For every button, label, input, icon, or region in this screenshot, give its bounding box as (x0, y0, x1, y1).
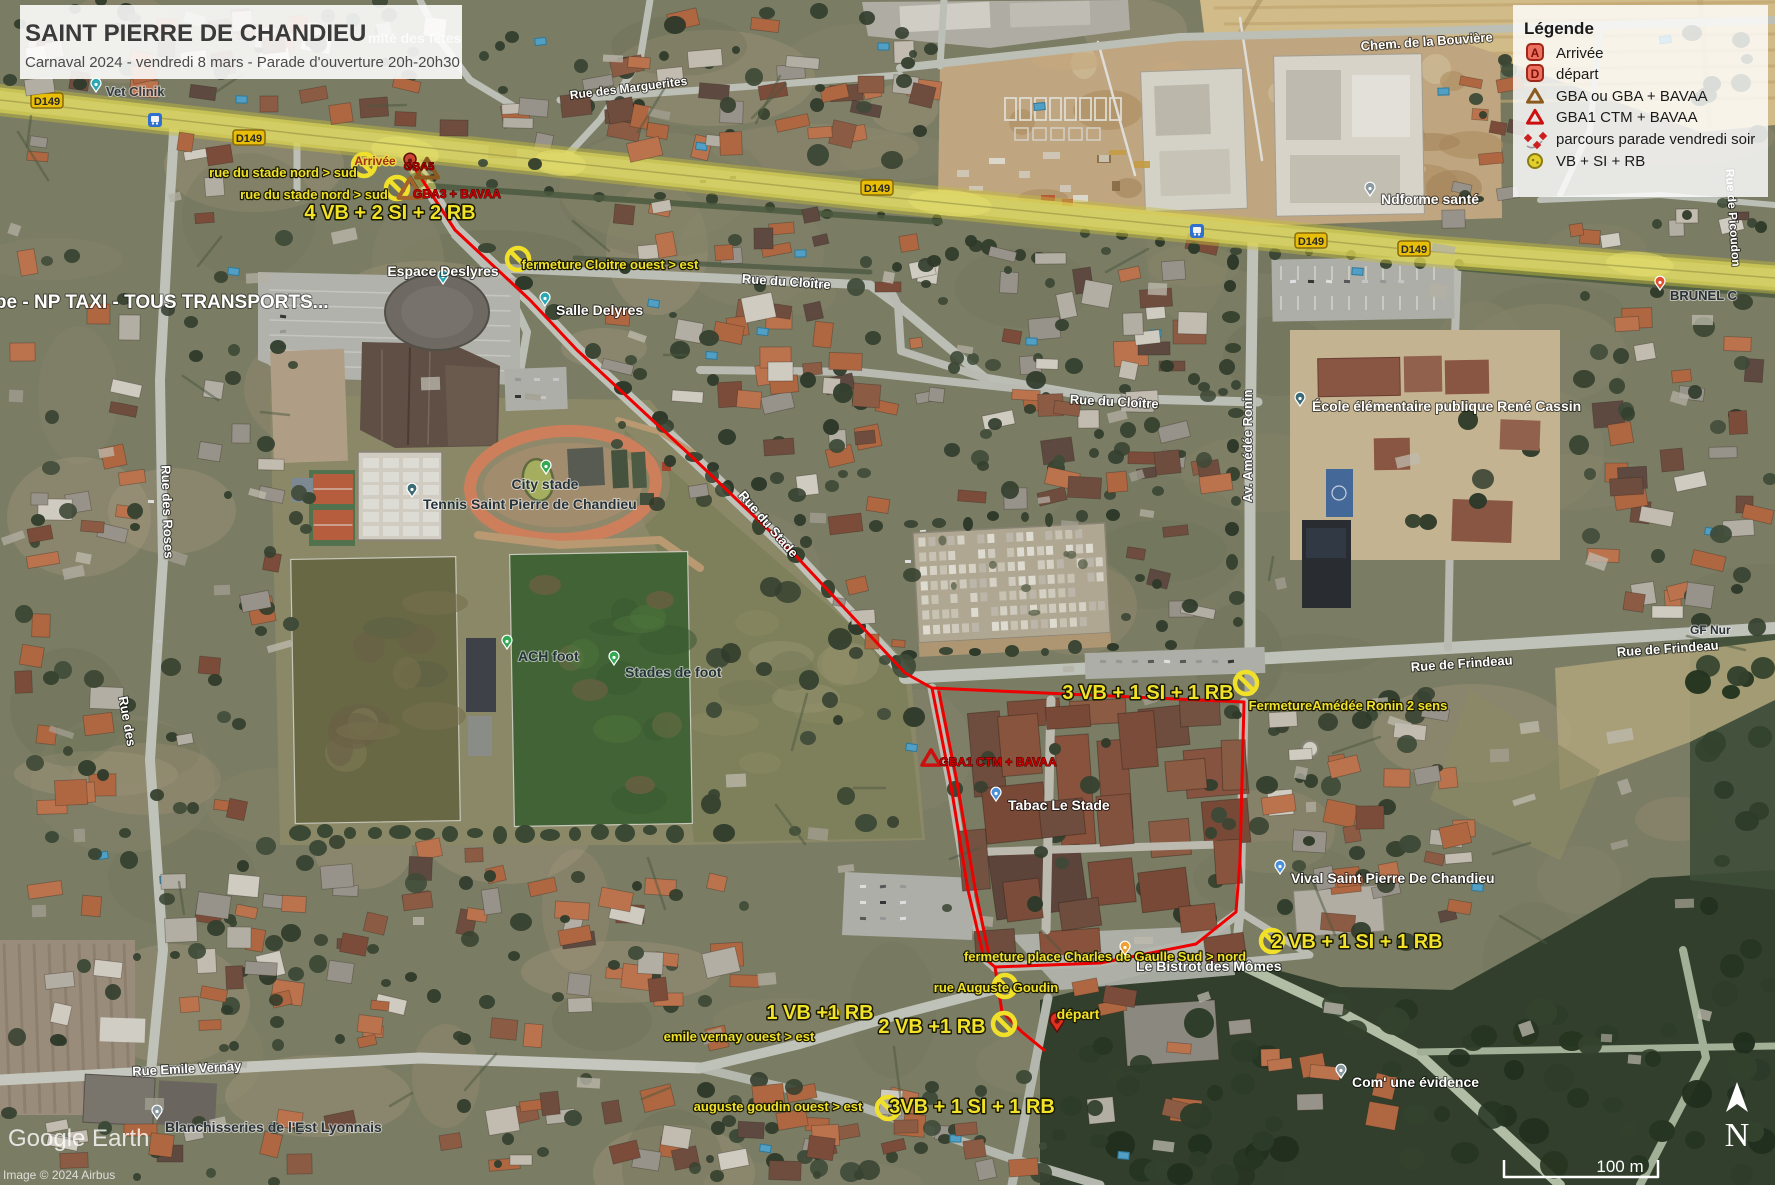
svg-text:4 VB + 2 SI + 2 RB: 4 VB + 2 SI + 2 RB (304, 202, 475, 224)
svg-text:GBA ou GBA + BAVAA: GBA ou GBA + BAVAA (1556, 88, 1708, 105)
svg-text:Stades de foot: Stades de foot (625, 664, 722, 680)
svg-text:Légende: Légende (1524, 19, 1594, 38)
svg-text:D: D (1531, 67, 1540, 81)
svg-text:BRUNEL C: BRUNEL C (1670, 288, 1738, 303)
svg-text:100 m: 100 m (1596, 1157, 1643, 1176)
svg-text:Vival Saint Pierre De Chandieu: Vival Saint Pierre De Chandieu (1291, 870, 1495, 886)
svg-text:2 VB + 1 SI + 1 RB: 2 VB + 1 SI + 1 RB (1271, 931, 1442, 953)
svg-text:Image © 2024 Airbus: Image © 2024 Airbus (3, 1168, 115, 1182)
svg-text:Tennis Saint Pierre de Chandie: Tennis Saint Pierre de Chandieu (423, 496, 637, 512)
svg-text:GBA5: GBA5 (404, 161, 435, 173)
svg-text:départ: départ (1556, 66, 1599, 83)
svg-text:SAINT PIERRE DE CHANDIEU: SAINT PIERRE DE CHANDIEU (25, 20, 366, 47)
svg-text:Salle Delyres: Salle Delyres (556, 302, 643, 318)
svg-text:GF Nur: GF Nur (1690, 623, 1731, 637)
svg-text:Carnaval 2024 - vendredi 8 mar: Carnaval 2024 - vendredi 8 mars - Parade… (25, 54, 460, 71)
svg-text:rue du stade nord > sud: rue du stade nord > sud (240, 187, 388, 202)
svg-text:A: A (1531, 46, 1540, 60)
svg-text:GBA1 CTM + BAVAA: GBA1 CTM + BAVAA (1556, 109, 1698, 126)
svg-text:fermeture Cloitre ouest > est: fermeture Cloitre ouest > est (522, 257, 699, 272)
svg-text:Google Earth: Google Earth (8, 1125, 149, 1152)
svg-text:Com' une évidence: Com' une évidence (1352, 1074, 1479, 1090)
svg-text:N: N (1725, 1117, 1750, 1154)
svg-text:ACH foot: ACH foot (518, 648, 579, 664)
svg-text:École élémentaire publique Ren: École élémentaire publique René Cassin (1312, 398, 1581, 414)
svg-text:GBA1 CTM + BAVAA: GBA1 CTM + BAVAA (939, 755, 1057, 769)
svg-text:1 VB +1 RB: 1 VB +1 RB (766, 1002, 873, 1024)
svg-text:FermetureAmédée Ronin 2 sens: FermetureAmédée Ronin 2 sens (1249, 698, 1448, 713)
svg-text:rue Auguste Goudin: rue Auguste Goudin (934, 980, 1059, 995)
svg-text:Espace Deslyres: Espace Deslyres (387, 263, 499, 279)
svg-text:rue du stade nord > sud: rue du stade nord > sud (209, 165, 357, 180)
svg-text:auguste goudin ouest > est: auguste goudin ouest > est (694, 1099, 863, 1114)
svg-text:GBA3 + BAVAA: GBA3 + BAVAA (413, 187, 501, 201)
svg-text:3 VB + 1 SI + 1 RB: 3 VB + 1 SI + 1 RB (1062, 682, 1233, 704)
svg-text:Av. Amédée Ronin: Av. Amédée Ronin (1240, 389, 1255, 502)
svg-text:ilippe - NP TAXI - TOUS TRANSP: ilippe - NP TAXI - TOUS TRANSPORTS... (0, 292, 329, 313)
svg-text:City stade: City stade (512, 476, 579, 492)
svg-text:3VB + 1 SI + 1 RB: 3VB + 1 SI + 1 RB (889, 1096, 1055, 1118)
svg-text:Vet Clinik: Vet Clinik (106, 84, 165, 99)
svg-text:Ndforme santé: Ndforme santé (1381, 191, 1479, 207)
svg-text:Arrivée: Arrivée (1556, 45, 1604, 62)
svg-text:VB + SI + RB: VB + SI + RB (1556, 153, 1645, 170)
svg-text:départ: départ (1057, 1006, 1100, 1022)
svg-text:emile vernay ouest > est: emile vernay ouest > est (664, 1029, 815, 1044)
svg-text:2 VB +1 RB: 2 VB +1 RB (878, 1016, 985, 1038)
svg-text:Le Bistrot des Mômes: Le Bistrot des Mômes (1136, 958, 1282, 974)
svg-text:Arrivée: Arrivée (354, 154, 396, 168)
svg-text:Tabac Le Stade: Tabac Le Stade (1008, 797, 1110, 813)
svg-text:Blanchisseries de l'Est Lyonna: Blanchisseries de l'Est Lyonnais (165, 1119, 382, 1135)
svg-text:parcours parade vendredi soir: parcours parade vendredi soir (1556, 131, 1755, 148)
